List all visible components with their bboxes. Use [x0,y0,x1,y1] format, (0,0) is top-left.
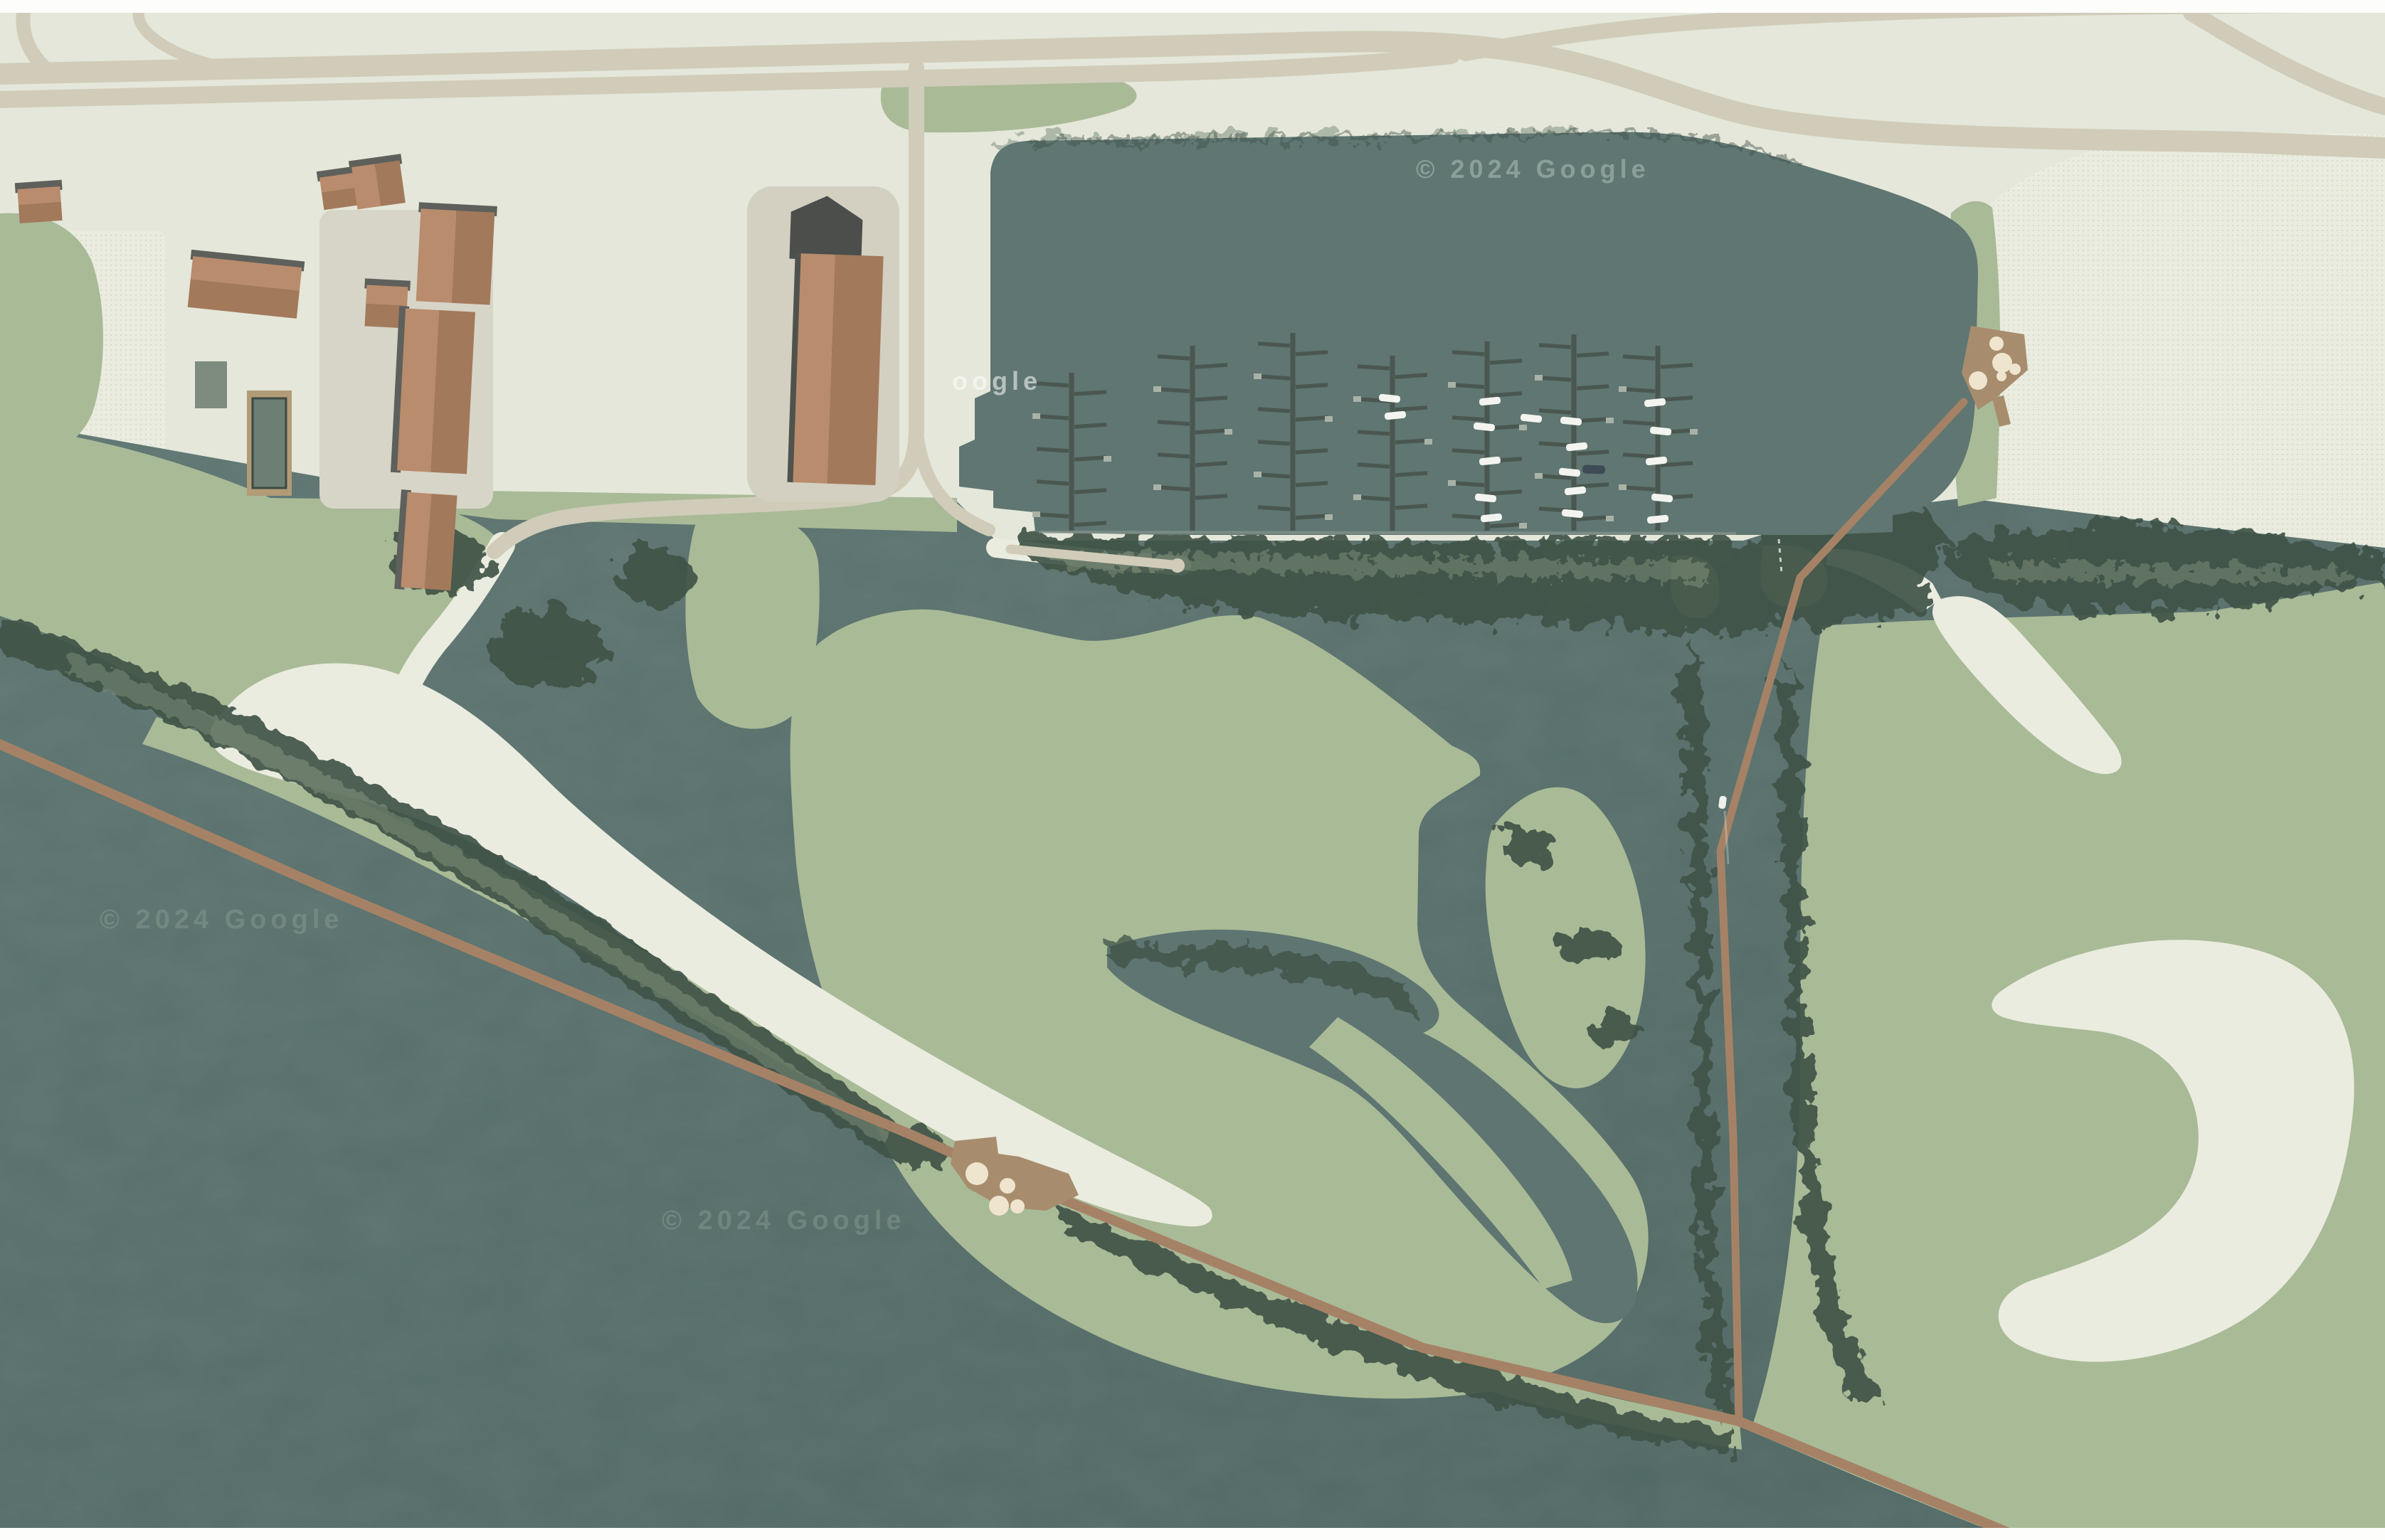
watermark-river-center: © 2024 Google [662,1206,906,1236]
tank-pool [247,391,292,496]
building-warehouse-f [391,306,475,476]
building-warehouse-d [414,202,497,305]
watermark-marina: © 2024 Google [1416,154,1650,184]
watermark-river-left: © 2024 Google [100,905,344,935]
top-margin-strip [0,0,2385,13]
watermark-partial: oogle [952,366,1042,395]
flat-roof-structure [195,361,227,408]
building-shed-b2 [349,154,408,210]
building-shed-a [15,180,65,223]
satellite-map-canvas[interactable]: © 2024 Google © 2024 Google © 2024 Googl… [0,0,2385,1540]
aerial-map-image: © 2024 Google © 2024 Google © 2024 Googl… [0,0,2385,1540]
bottom-margin-strip [0,1528,2385,1540]
marina-basin [959,132,1978,535]
building-warehouse-g [394,489,458,593]
building-warehouse-c [186,250,305,319]
